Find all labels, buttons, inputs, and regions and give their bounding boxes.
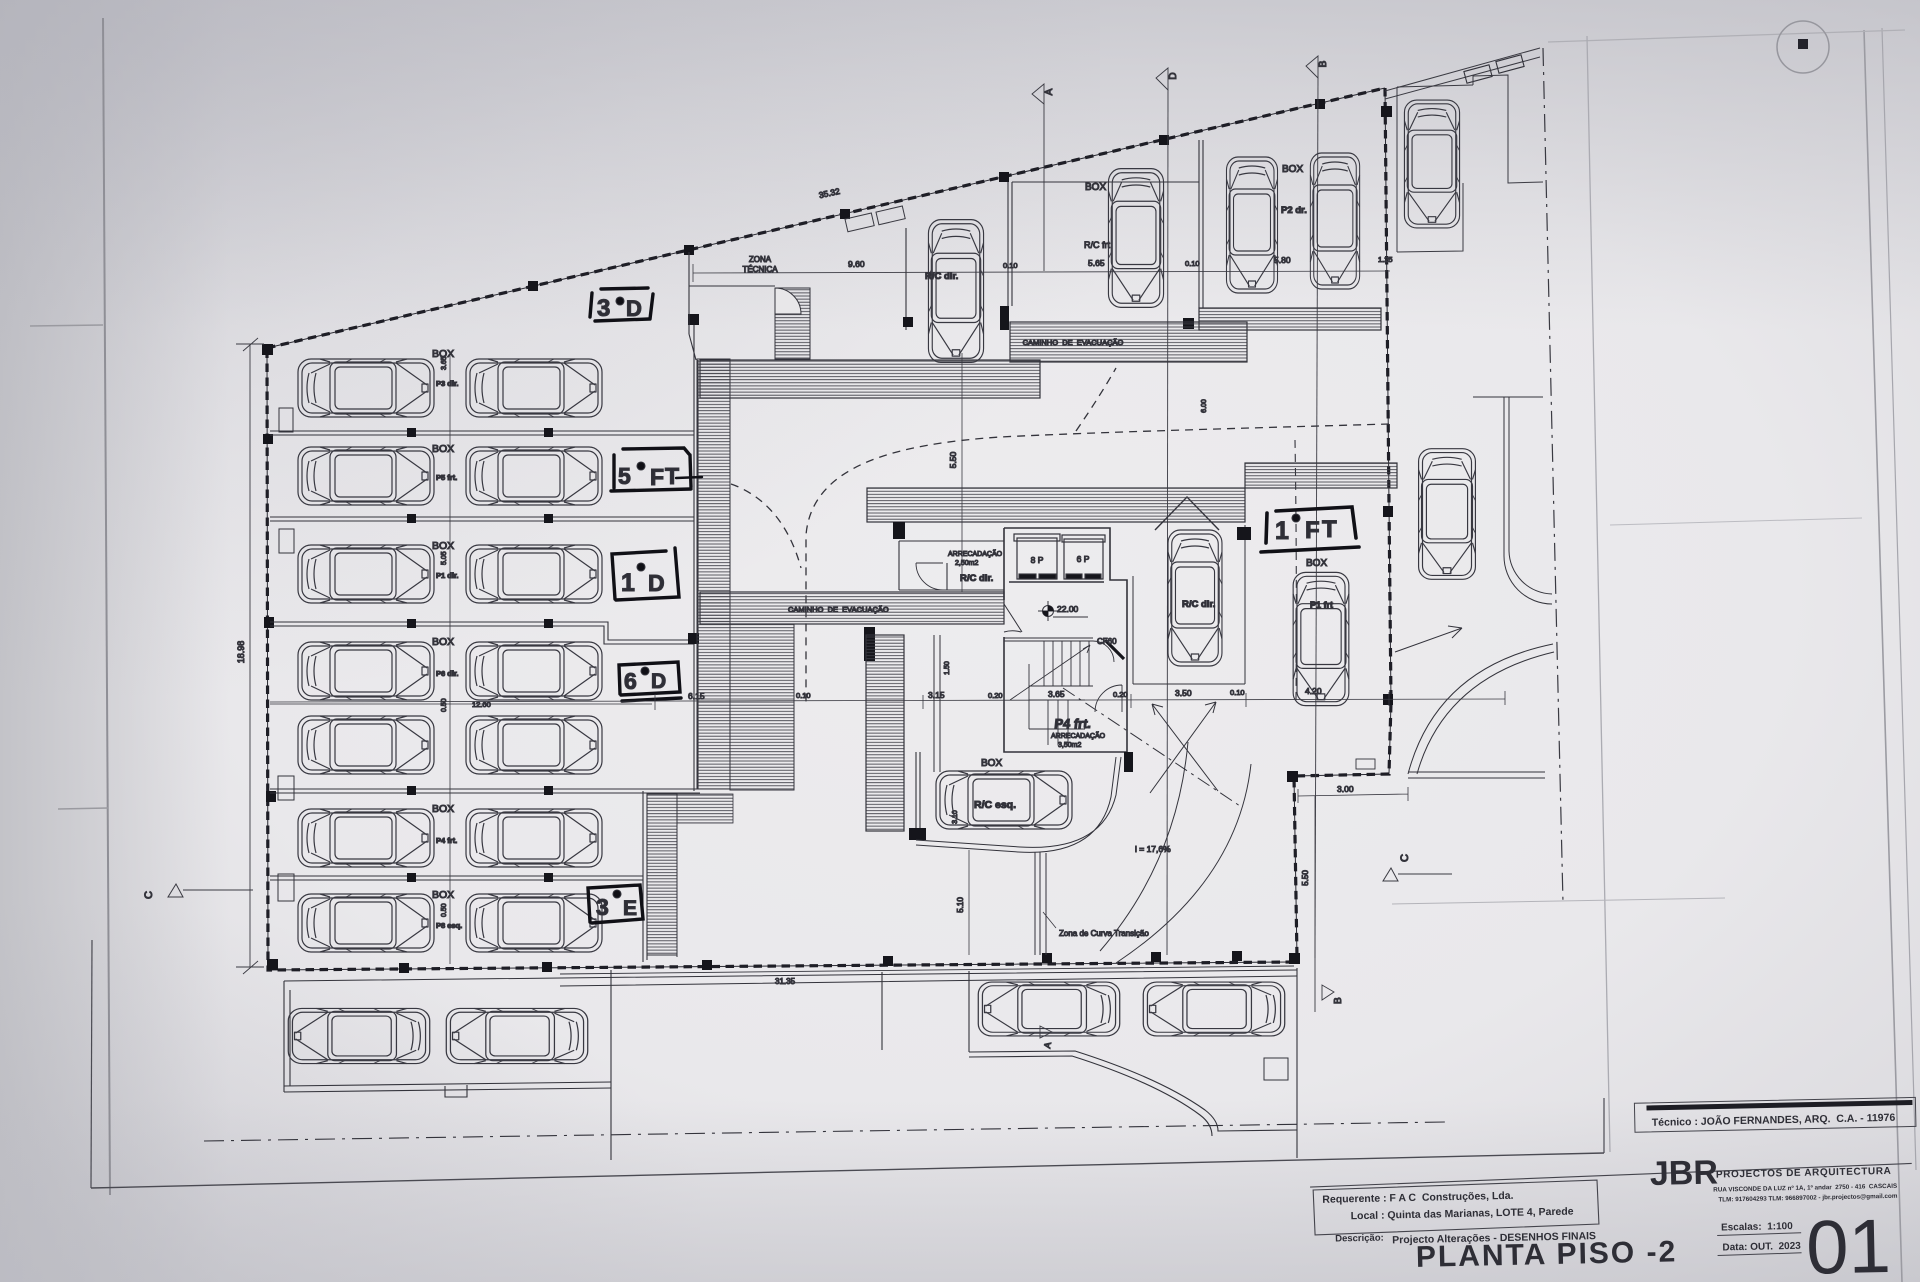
svg-text:P4 frt.: P4 frt.	[1054, 716, 1092, 731]
svg-text:BOX: BOX	[1306, 558, 1327, 569]
svg-text:BOX: BOX	[432, 540, 454, 552]
svg-text:PLANTA PISO -2: PLANTA PISO -2	[1416, 1235, 1678, 1273]
svg-text:ARRECADAÇÃO: ARRECADAÇÃO	[948, 549, 1003, 558]
svg-text:8 P: 8 P	[1031, 555, 1044, 565]
svg-text:0.10: 0.10	[1230, 688, 1245, 697]
svg-text:P6 dir.: P6 dir.	[436, 669, 459, 678]
svg-text:BOX: BOX	[1085, 182, 1106, 193]
svg-text:BOX: BOX	[432, 443, 454, 455]
svg-text:6.00: 6.00	[1201, 399, 1208, 413]
svg-text:1: 1	[621, 569, 635, 597]
svg-text:5.65: 5.65	[1088, 258, 1105, 268]
svg-text:5.10: 5.10	[956, 897, 965, 913]
svg-text:3.50: 3.50	[1175, 688, 1192, 698]
svg-text:1.50: 1.50	[944, 661, 951, 675]
svg-text:31.35: 31.35	[775, 977, 796, 986]
svg-text:9.60: 9.60	[848, 259, 865, 269]
svg-text:6: 6	[624, 668, 637, 694]
svg-text:T: T	[665, 463, 679, 489]
svg-text:2,50m2: 2,50m2	[955, 560, 978, 567]
svg-text:BOX: BOX	[981, 758, 1002, 769]
svg-text:BOX: BOX	[1282, 164, 1303, 175]
svg-text:P1 frt: P1 frt	[1310, 600, 1333, 610]
svg-text:Descrição:: Descrição:	[1335, 1233, 1384, 1245]
svg-text:T: T	[1322, 516, 1337, 543]
svg-text:R/C dir.: R/C dir.	[925, 271, 958, 282]
svg-text:D: D	[648, 570, 665, 596]
svg-text:P2 dr.: P2 dr.	[1281, 205, 1307, 216]
svg-text:BOX: BOX	[432, 889, 454, 901]
svg-text:0.20: 0.20	[1113, 690, 1128, 699]
svg-text:5.50: 5.50	[948, 451, 958, 468]
svg-text:E: E	[623, 897, 637, 920]
svg-text:5.05: 5.05	[441, 551, 448, 565]
svg-text:01: 01	[1805, 1204, 1891, 1282]
svg-text:CAMINHO DE EVACUAÇÃO: CAMINHO DE EVACUAÇÃO	[788, 605, 889, 614]
svg-text:R/C frt: R/C frt	[1084, 240, 1110, 250]
svg-text:B: B	[1333, 997, 1344, 1004]
svg-text:D: D	[651, 670, 666, 693]
svg-text:JBR: JBR	[1649, 1154, 1718, 1193]
svg-text:0.20: 0.20	[988, 691, 1003, 700]
svg-text:3.65: 3.65	[441, 356, 448, 370]
svg-text:Escalas: 1:100: Escalas: 1:100	[1721, 1221, 1793, 1234]
svg-text:CAMINHO DE EVACUAÇÃO: CAMINHO DE EVACUAÇÃO	[1023, 338, 1124, 347]
svg-text:5: 5	[618, 463, 631, 489]
svg-text:P1 dir.: P1 dir.	[436, 571, 459, 580]
svg-text:P8 esq.: P8 esq.	[436, 921, 462, 930]
svg-text:i = 17,6%: i = 17,6%	[1135, 844, 1171, 854]
svg-text:ZONA: ZONA	[749, 255, 772, 264]
svg-text:B: B	[1318, 60, 1329, 67]
svg-text:3,50m2: 3,50m2	[1058, 742, 1081, 749]
svg-text:BOX: BOX	[432, 803, 454, 815]
svg-text:F: F	[1305, 517, 1320, 544]
svg-text:0.50: 0.50	[441, 698, 448, 712]
svg-text:CF60: CF60	[1097, 637, 1117, 646]
svg-text:5.50: 5.50	[1301, 870, 1310, 886]
svg-text:P3 dir.: P3 dir.	[436, 379, 459, 388]
svg-text:0.10: 0.10	[1003, 261, 1018, 270]
svg-text:3.65: 3.65	[1048, 689, 1065, 699]
svg-text:1: 1	[1275, 517, 1289, 545]
svg-text:3: 3	[597, 295, 610, 322]
svg-text:P5 frt.: P5 frt.	[436, 473, 457, 482]
svg-text:R/C dir.: R/C dir.	[1182, 599, 1215, 610]
svg-text:18.98: 18.98	[236, 641, 246, 664]
svg-text:0.50: 0.50	[441, 903, 448, 917]
svg-text:Zona de Curva Transição: Zona de Curva Transição	[1059, 929, 1149, 938]
svg-text:6 P: 6 P	[1077, 554, 1090, 564]
svg-text:P4 frt.: P4 frt.	[436, 836, 457, 845]
svg-text:6.15: 6.15	[688, 691, 705, 701]
svg-text:R/C dir.: R/C dir.	[960, 573, 993, 584]
svg-text:F: F	[650, 464, 664, 490]
svg-text:ARRECADAÇÃO: ARRECADAÇÃO	[1051, 731, 1106, 740]
svg-text:Data: OUT. 2023: Data: OUT. 2023	[1722, 1241, 1801, 1254]
svg-text:C: C	[143, 891, 155, 899]
svg-text:C: C	[1399, 854, 1411, 862]
svg-text:D: D	[626, 296, 642, 321]
svg-text:BOX: BOX	[432, 636, 454, 648]
svg-text:3.00: 3.00	[1337, 784, 1354, 794]
svg-text:0.10: 0.10	[796, 691, 811, 700]
svg-text:R/C esq.: R/C esq.	[974, 799, 1016, 811]
svg-text:0.10: 0.10	[1185, 259, 1200, 268]
svg-text:3: 3	[596, 894, 609, 920]
svg-text:1.25: 1.25	[1378, 255, 1393, 264]
svg-text:22.00: 22.00	[1057, 604, 1079, 614]
svg-text:3.15: 3.15	[928, 690, 945, 700]
svg-text:A: A	[1044, 88, 1055, 95]
svg-text:D: D	[1168, 72, 1179, 79]
